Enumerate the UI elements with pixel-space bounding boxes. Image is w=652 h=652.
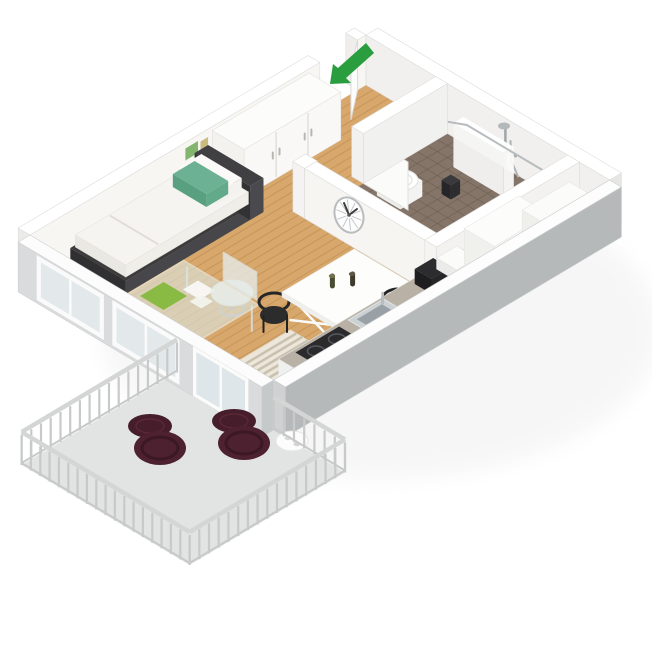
floor-plan-stage bbox=[0, 0, 652, 652]
bottle-1-cap bbox=[329, 274, 335, 278]
bathroom-wall-north-a-side bbox=[293, 162, 305, 219]
bottle-2-cap bbox=[349, 272, 355, 276]
shower-head bbox=[498, 123, 510, 130]
sink-faucet bbox=[382, 292, 383, 303]
bathroom-wall-north-b-side bbox=[352, 127, 364, 184]
floor-plan-3d-render bbox=[0, 0, 652, 652]
wall-west-front bbox=[262, 380, 274, 437]
wall-clock-center bbox=[347, 213, 351, 217]
